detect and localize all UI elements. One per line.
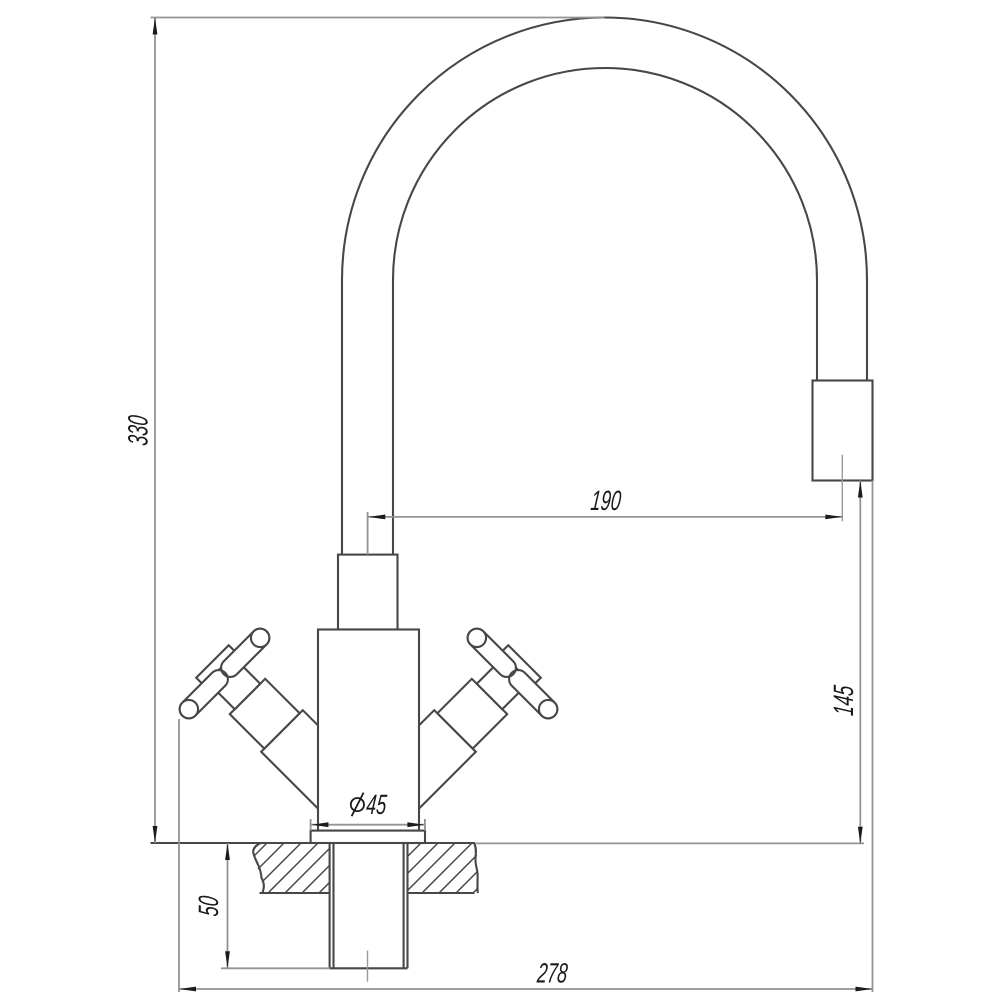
svg-text:145: 145 bbox=[828, 684, 859, 717]
svg-text:278: 278 bbox=[535, 958, 569, 989]
svg-text:45: 45 bbox=[365, 789, 388, 820]
svg-text:190: 190 bbox=[589, 485, 622, 516]
svg-text:50: 50 bbox=[193, 894, 224, 917]
svg-text:330: 330 bbox=[123, 413, 154, 446]
